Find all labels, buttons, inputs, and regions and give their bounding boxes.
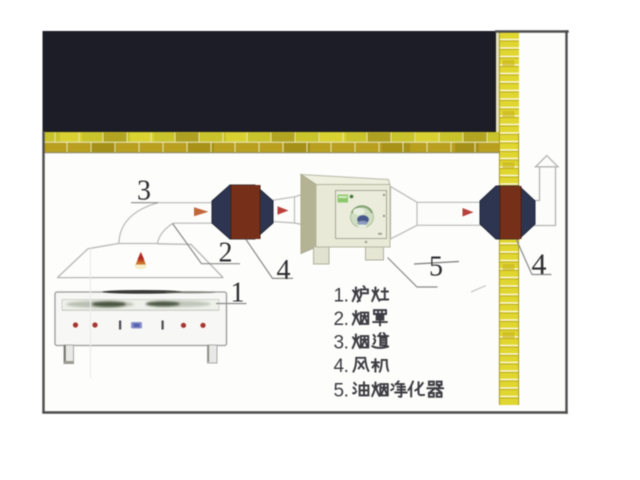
svg-text:4.: 4. bbox=[334, 356, 349, 377]
svg-text:5: 5 bbox=[429, 252, 443, 283]
svg-text:2: 2 bbox=[219, 238, 233, 269]
svg-text:3.: 3. bbox=[334, 333, 349, 354]
svg-text:1.: 1. bbox=[334, 286, 349, 307]
svg-text:4: 4 bbox=[277, 255, 291, 286]
svg-text:4: 4 bbox=[532, 248, 547, 281]
svg-text:3: 3 bbox=[137, 176, 151, 207]
svg-text:5.: 5. bbox=[334, 381, 349, 402]
svg-text:1: 1 bbox=[231, 278, 245, 309]
svg-text:2.: 2. bbox=[334, 309, 349, 330]
